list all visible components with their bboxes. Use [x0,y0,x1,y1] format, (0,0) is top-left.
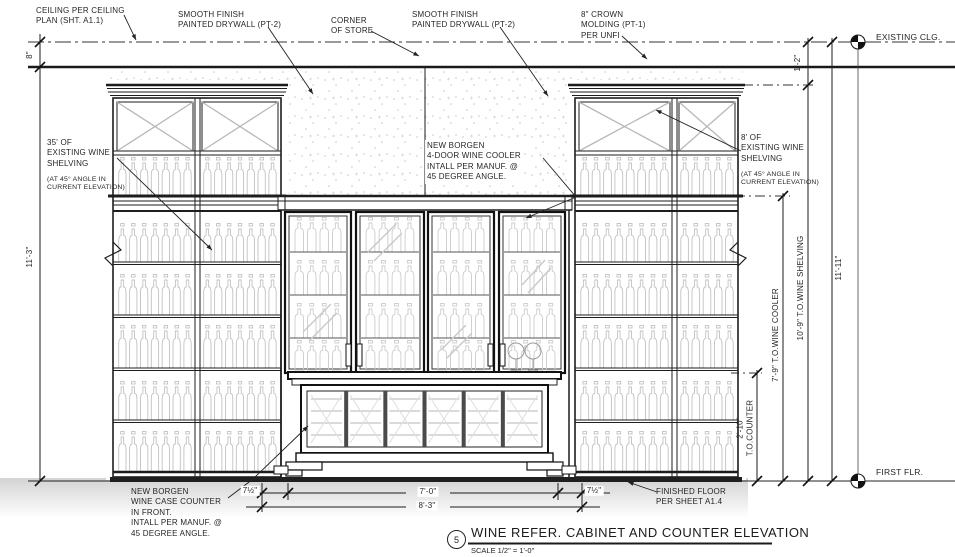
dim-overall-height: 11'-11" [834,255,844,280]
level-first-floor: FIRST FLR. [876,467,923,478]
dim-ceiling-gap: 8" [25,51,35,59]
note-finished-floor: FINISHED FLOOR PER SHEET A1.4 [656,487,726,508]
dim-counter-height: 2'-10" T.O.COUNTER [736,400,757,456]
note-shelving-left: 35' OF EXISTING WINE SHELVING [47,138,110,169]
note-shelving-right-sub: (AT 45° ANGLE IN CURRENT ELEVATION) [741,171,819,188]
dim-clg-to-shelving: 1'-2" [793,55,803,72]
note-crown-molding: 8" CROWN MOLDING (PT-1) PER UNFI [581,10,646,41]
note-corner-of-store: CORNER OF STORE [331,16,373,37]
detail-number-badge: 5 [447,530,466,549]
elevation-sheet: CEILING PER CEILING PLAN (SHT. A1.1) SMO… [0,0,955,557]
dim-cooler-width: 7'-0" [418,487,439,497]
dim-wall-height: 11'-3" [25,247,35,268]
dim-overall-width: 8'-3" [417,501,438,511]
note-wine-cooler: NEW BORGEN 4-DOOR WINE COOLER INTALL PER… [425,140,523,184]
note-smooth-finish-right: SMOOTH FINISH PAINTED DRYWALL (PT-2) [412,10,515,31]
dim-shelving-height: 10'-9" T.O.WINE SHELVING [796,236,806,341]
note-shelving-right: 8' OF EXISTING WINE SHELVING [741,133,804,164]
elevation-linework [0,0,955,557]
note-counter: NEW BORGEN WINE CASE COUNTER IN FRONT. I… [131,487,222,539]
note-smooth-finish-left: SMOOTH FINISH PAINTED DRYWALL (PT-2) [178,10,281,31]
drawing-title: WINE REFER. CABINET AND COUNTER ELEVATIO… [471,525,809,540]
level-existing-ceiling: EXISTING CLG. [876,32,940,43]
note-ceiling-plan: CEILING PER CEILING PLAN (SHT. A1.1) [36,6,125,27]
dim-cooler-height: 7'-9" T.O.WINE COOLER [771,288,781,382]
note-shelving-left-sub: (AT 45° ANGLE IN CURRENT ELEVATION) [47,176,125,193]
dim-side-offset-left: 7½" [241,486,260,496]
drawing-scale: SCALE 1/2" = 1'-0" [471,546,534,555]
dim-side-offset-right: 7½" [585,486,604,496]
